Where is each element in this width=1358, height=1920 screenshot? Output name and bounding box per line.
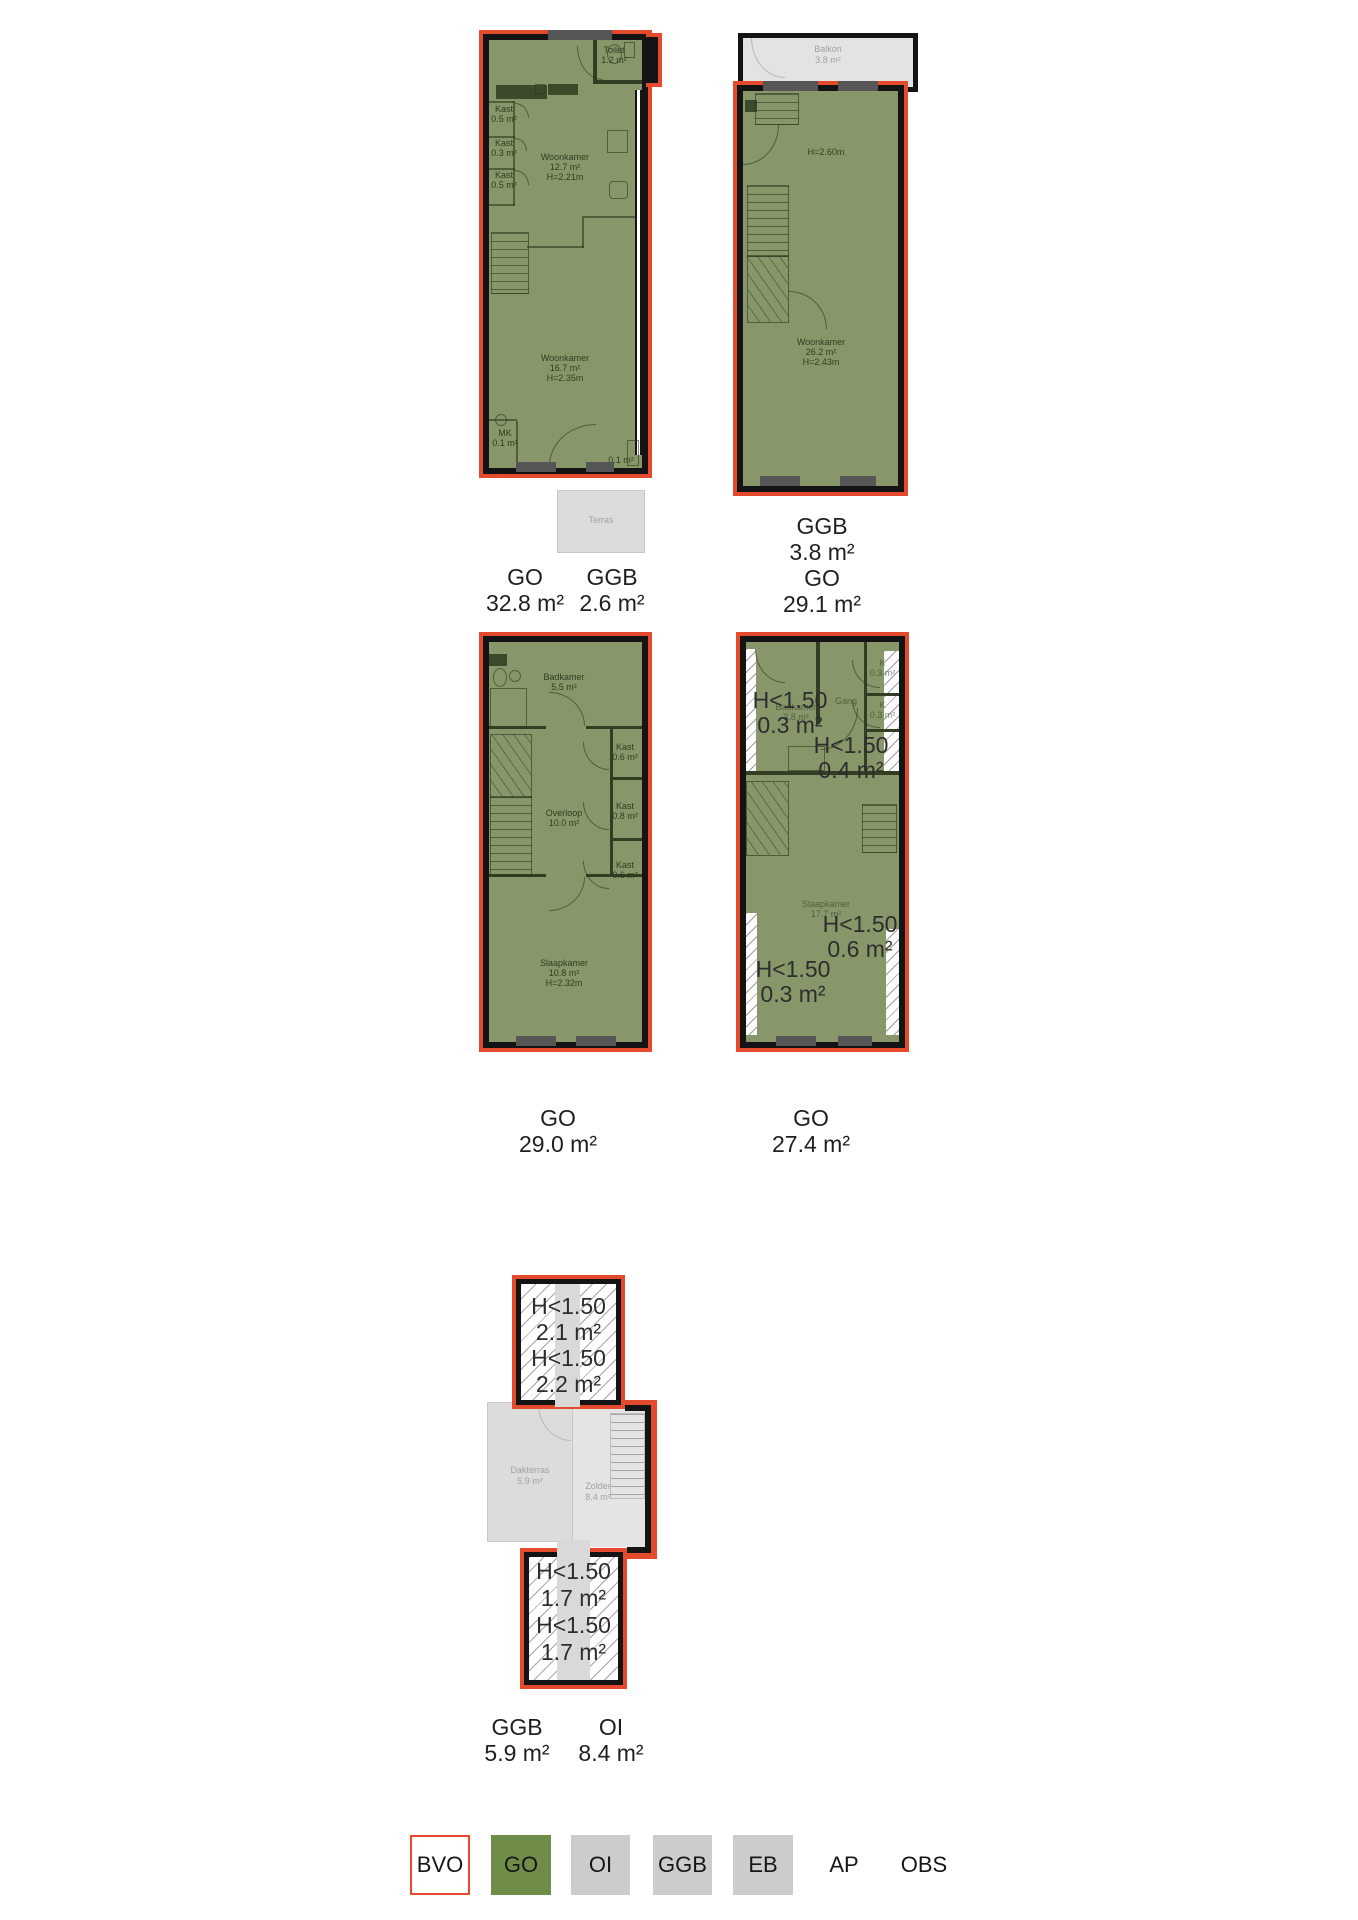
annotation-area: 2.1 m²: [521, 1319, 616, 1345]
caption-area: 29.0 m²: [498, 1131, 618, 1157]
zolder-area: Zolder 8.4 m²: [573, 1405, 645, 1547]
zolder-wall: [625, 1405, 645, 1411]
stairs-icon: [755, 93, 799, 125]
room-label-toilet: Toilet 1.2 m²: [594, 45, 634, 65]
annotation-label: H<1.50: [746, 688, 834, 713]
terras-label: Terras: [558, 515, 644, 526]
legend-item-ggb: GGB: [653, 1835, 712, 1895]
legend-label: AP: [829, 1852, 858, 1878]
caption-code: GO: [751, 1105, 871, 1131]
door-arc: [755, 649, 785, 683]
door-arc: [549, 692, 585, 726]
plan3-middle-left: Badkamer 5.5 m² Kast 0.6 m² Kast 0.8 m² …: [479, 632, 652, 1052]
room-height: H=2.60m: [783, 147, 869, 157]
annotation-area: 1.7 m²: [529, 1585, 618, 1612]
room-name: Kast: [607, 801, 643, 811]
interior-line: [582, 216, 584, 248]
room-name: Slaapkamer: [524, 958, 604, 968]
caption-plan2: GGB 3.8 m² GO 29.1 m²: [762, 513, 882, 617]
room-label-kast1: Kast 0.6 m²: [607, 742, 643, 762]
interior-line: [584, 216, 635, 218]
annotation-area: 0.3 m²: [749, 982, 837, 1007]
zolder-wall: [627, 1553, 657, 1559]
kast-divider: [610, 838, 642, 841]
room-area: 8.4 m²: [573, 1492, 623, 1503]
plan2-top-right: H=2.60m Woonkamer 26.2 m² H=2.43m: [733, 81, 908, 496]
legend-label: BVO: [417, 1852, 463, 1878]
room-area: 0.3 m²: [866, 710, 899, 720]
window-marker: [576, 1036, 616, 1046]
room-name: Zolder: [573, 1481, 623, 1492]
height-annotation-1: H<1.50 0.3 m²: [746, 688, 834, 738]
room-height: H=2.43m: [781, 357, 861, 367]
room-name: Kast: [607, 860, 643, 870]
door-arc: [583, 861, 609, 889]
door-arc: [583, 742, 609, 770]
legend-label: OBS: [901, 1852, 947, 1878]
room-height: H=2.35m: [525, 373, 605, 383]
window-marker: [548, 30, 612, 40]
room-area: 0.6 m²: [607, 870, 643, 880]
caption-area: 32.8 m²: [475, 590, 575, 616]
height-annotation-3: H<1.50 0.6 m²: [816, 912, 904, 962]
door-arc: [789, 291, 827, 329]
room-label-overloop: Overloop 10.0 m²: [524, 808, 604, 828]
room-label-k1: K 0.3 m²: [866, 658, 899, 678]
caption-plan1-ggb: GGB 2.6 m²: [562, 564, 662, 616]
room-name: Kast: [489, 138, 519, 148]
interior-wall: [586, 726, 642, 729]
interior-wall: [593, 80, 642, 84]
caption-area: 8.4 m²: [556, 1740, 666, 1766]
room-area: 10.8 m²: [524, 968, 604, 978]
room-label-kast1: Kast 0.5 m²: [489, 104, 519, 124]
caption-code: GO: [762, 565, 882, 591]
annotation-label: H<1.50: [807, 733, 895, 758]
door-arc: [743, 125, 779, 165]
room-area: 12.7 m²: [525, 162, 605, 172]
room-name: Kast: [607, 742, 643, 752]
plan5-bottom-box: H<1.50 1.7 m² H<1.50 1.7 m²: [520, 1548, 627, 1689]
height-annotation-bottom: H<1.50 1.7 m² H<1.50 1.7 m²: [529, 1558, 618, 1666]
stairs-winder-icon: [747, 255, 789, 323]
wall-slit: [635, 90, 642, 455]
window-marker: [586, 462, 614, 472]
balkon-label: Balkon 3.8 m²: [778, 44, 878, 66]
window-marker: [760, 476, 800, 486]
interior-line: [527, 246, 584, 248]
legend-item-obs: OBS: [894, 1835, 954, 1895]
interior-wall: [489, 726, 546, 729]
stairs-icon: [491, 232, 529, 294]
door-arc: [549, 877, 585, 911]
zolder-wall: [645, 1405, 651, 1553]
legend-item-bvo: BVO: [410, 1835, 470, 1895]
height-annotation-2: H<1.50 0.4 m²: [807, 733, 895, 783]
window-marker: [516, 1036, 556, 1046]
zolder-wall: [651, 1400, 657, 1559]
room-area: 0.6 m²: [607, 752, 643, 762]
room-label-kast2: Kast 0.8 m²: [607, 801, 643, 821]
room-area: 1.2 m²: [594, 55, 634, 65]
kast-divider: [610, 777, 642, 780]
plan5-top-box: H<1.50 2.1 m² H<1.50 2.2 m²: [512, 1275, 625, 1409]
wall-band: [489, 654, 507, 666]
legend-item-oi: OI: [571, 1835, 630, 1895]
room-area: 10.0 m²: [524, 818, 604, 828]
plan1-top-left: Toilet 1.2 m² Kast 0.5 m² Kast 0.3 m² Ka…: [479, 30, 652, 478]
room-area: 5.9 m²: [488, 1476, 572, 1487]
room-name: K: [866, 658, 899, 668]
room-name: Badkamer: [524, 672, 604, 682]
kitchen-band: [548, 84, 578, 95]
stairs-winder-icon: [746, 781, 789, 856]
plan1-interior: Toilet 1.2 m² Kast 0.5 m² Kast 0.3 m² Ka…: [483, 34, 648, 474]
room-name: Toilet: [594, 45, 634, 55]
caption-area: 2.6 m²: [562, 590, 662, 616]
room-label-mk: MK 0.1 m²: [489, 428, 521, 448]
stairs-icon: [862, 804, 897, 853]
room-label-badkamer: Badkamer 5.5 m²: [524, 672, 604, 692]
plan4-interior: Badkamer 3.8 m² Gang K 0.3 m² K 0.3 m² S…: [740, 636, 905, 1048]
legend-label: GO: [504, 1852, 538, 1878]
door-arc: [549, 424, 596, 466]
annotation-label: H<1.50: [521, 1293, 616, 1319]
room-name: Woonkamer: [525, 353, 605, 363]
dakterras-area: Dakterras 5.9 m²: [487, 1402, 573, 1542]
toilet-fixture: [493, 668, 507, 687]
appliance-fixture: [609, 181, 628, 199]
caption-code: OI: [556, 1714, 666, 1740]
caption-area: 29.1 m²: [762, 591, 882, 617]
dakterras-label: Dakterras 5.9 m²: [488, 1465, 572, 1487]
plan4-middle-right: Badkamer 3.8 m² Gang K 0.3 m² K 0.3 m² S…: [736, 632, 909, 1052]
room-name: Balkon: [778, 44, 878, 55]
caption-code: GO: [498, 1105, 618, 1131]
room-name: Dakterras: [488, 1465, 572, 1476]
room-label-kast3: Kast 0.5 m²: [489, 170, 519, 190]
zolder-label: Zolder 8.4 m²: [573, 1481, 623, 1503]
stairs-winder-icon: [490, 734, 532, 798]
room-name: Kast: [489, 104, 519, 114]
legend-item-eb: EB: [733, 1835, 793, 1895]
room-area: 0.5 m²: [489, 180, 519, 190]
plan1-wall-bump: [646, 33, 662, 87]
room-area: 0.3 m²: [866, 668, 899, 678]
plan2-interior: H=2.60m Woonkamer 26.2 m² H=2.43m: [737, 85, 904, 492]
annotation-label: H<1.50: [749, 957, 837, 982]
room-area: 0.5 m²: [489, 114, 519, 124]
plan5-bottom-interior: H<1.50 1.7 m² H<1.50 1.7 m²: [524, 1552, 623, 1685]
annotation-area: 1.7 m²: [529, 1639, 618, 1666]
room-area: 5.5 m²: [524, 682, 604, 692]
window-marker: [776, 1036, 816, 1046]
caption-code: GGB: [762, 513, 882, 539]
room-label-kast3: Kast 0.6 m²: [607, 860, 643, 880]
chimney-strip: [555, 1394, 580, 1407]
room-area: 0.8 m²: [607, 811, 643, 821]
chimney-strip: [557, 1540, 590, 1558]
terras-name: Terras: [558, 515, 644, 526]
bath-fixture: [490, 688, 527, 727]
caption-plan5-oi: OI 8.4 m²: [556, 1714, 666, 1766]
plan5-top-interior: H<1.50 2.1 m² H<1.50 2.2 m²: [516, 1279, 621, 1405]
annotation-label: H<1.50: [521, 1345, 616, 1371]
ceiling-height-label: H=2.60m: [783, 147, 869, 157]
room-name: Woonkamer: [525, 152, 605, 162]
mk-fixture: [495, 414, 507, 426]
legend-item-ap: AP: [814, 1835, 874, 1895]
terras-area: Terras: [557, 490, 645, 553]
room-name: Overloop: [524, 808, 604, 818]
legend-item-go: GO: [491, 1835, 551, 1895]
stairs-icon: [747, 185, 789, 257]
annotation-label: H<1.50: [529, 1558, 618, 1585]
kast-divider: [864, 693, 899, 696]
kast-divider: [489, 204, 515, 206]
legend-label: OI: [589, 1852, 612, 1878]
room-area: 0.1 m²: [489, 438, 521, 448]
floorplan-sheet: Terras: [0, 0, 1358, 1920]
annotation-area: 0.4 m²: [807, 758, 895, 783]
window-marker: [838, 1036, 872, 1046]
washer-fixture: [607, 130, 628, 153]
room-label-woonkamer2: Woonkamer 16.7 m² H=2.35m: [525, 353, 605, 383]
door-arc: [538, 1404, 571, 1441]
caption-area: 27.4 m²: [751, 1131, 871, 1157]
window-marker: [516, 462, 556, 472]
room-name: Slaapkamer: [793, 899, 859, 909]
kitchen-fixture: [535, 84, 545, 94]
room-label-kast2: Kast 0.3 m²: [489, 138, 519, 158]
window-marker: [763, 81, 818, 91]
caption-plan1-go: GO 32.8 m²: [475, 564, 575, 616]
caption-area: 3.8 m²: [762, 539, 882, 565]
room-name: Kast: [489, 170, 519, 180]
caption-plan4: GO 27.4 m²: [751, 1105, 871, 1157]
window-marker: [838, 81, 878, 91]
room-label-woonkamer1: Woonkamer 12.7 m² H=2.21m: [525, 152, 605, 182]
annotation-label: H<1.50: [529, 1612, 618, 1639]
room-name: MK: [489, 428, 521, 438]
legend-label: EB: [748, 1852, 777, 1878]
room-name: K: [866, 700, 899, 710]
plan3-interior: Badkamer 5.5 m² Kast 0.6 m² Kast 0.8 m² …: [483, 636, 648, 1048]
caption-plan3: GO 29.0 m²: [498, 1105, 618, 1157]
room-label-woonkamer: Woonkamer 26.2 m² H=2.43m: [781, 337, 861, 367]
room-label-k2: K 0.3 m²: [866, 700, 899, 720]
room-name: Woonkamer: [781, 337, 861, 347]
height-annotation-4: H<1.50 0.3 m²: [749, 957, 837, 1007]
room-label-slaapkamer: Slaapkamer 10.8 m² H=2.32m: [524, 958, 604, 988]
room-area: 0.3 m²: [489, 148, 519, 158]
room-area: 3.8 m²: [778, 55, 878, 66]
legend-label: GGB: [658, 1852, 707, 1878]
height-annotation-top: H<1.50 2.1 m² H<1.50 2.2 m²: [521, 1293, 616, 1397]
sink-fixture: [509, 670, 521, 682]
room-area: 26.2 m²: [781, 347, 861, 357]
room-area: 16.7 m²: [525, 363, 605, 373]
window-marker: [840, 476, 876, 486]
caption-code: GO: [475, 564, 575, 590]
caption-code: GGB: [562, 564, 662, 590]
room-height: H=2.32m: [524, 978, 604, 988]
room-height: H=2.21m: [525, 172, 605, 182]
kast-divider: [489, 101, 515, 103]
annotation-label: H<1.50: [816, 912, 904, 937]
